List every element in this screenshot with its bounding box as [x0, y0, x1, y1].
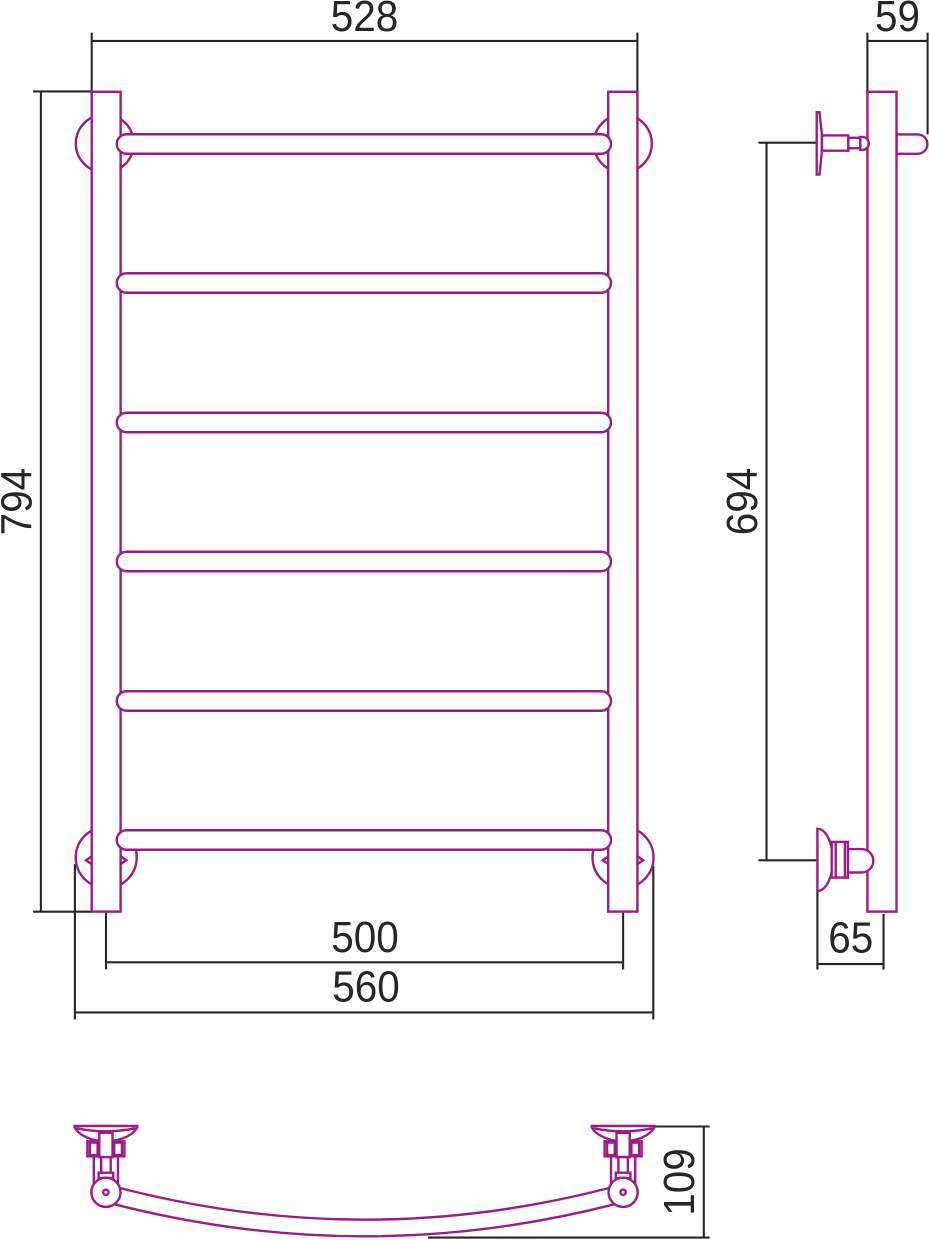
svg-text:528: 528 — [331, 0, 399, 40]
svg-text:109: 109 — [654, 1148, 703, 1216]
svg-text:65: 65 — [828, 913, 873, 962]
svg-text:794: 794 — [0, 468, 41, 536]
svg-text:500: 500 — [331, 912, 399, 961]
svg-text:560: 560 — [332, 962, 400, 1011]
svg-text:694: 694 — [717, 468, 766, 536]
svg-text:59: 59 — [875, 0, 920, 40]
